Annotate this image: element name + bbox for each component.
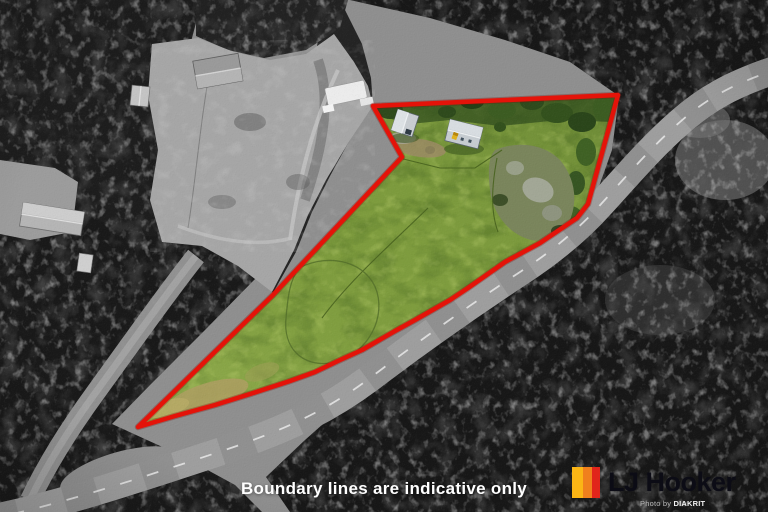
aerial-scene [0,0,768,512]
lj-hooker-logo: LJ Hooker Photo by DIAKRIT [572,467,768,512]
film-grain-dark [1,1,768,512]
photo-credit-prefix: Photo by [640,499,674,508]
photo-credit: Photo by DIAKRIT [640,499,705,508]
logo-stripe-red [592,467,600,498]
photo-credit-brand: DIAKRIT [674,499,706,508]
lj-hooker-wordmark: LJ Hooker [608,467,736,498]
lj-hooker-logo-icon [572,467,600,498]
logo-stripe-yellow [572,467,583,498]
aerial-photo: Boundary lines are indicative only LJ Ho… [0,0,768,512]
logo-stripe-orange [583,467,592,498]
